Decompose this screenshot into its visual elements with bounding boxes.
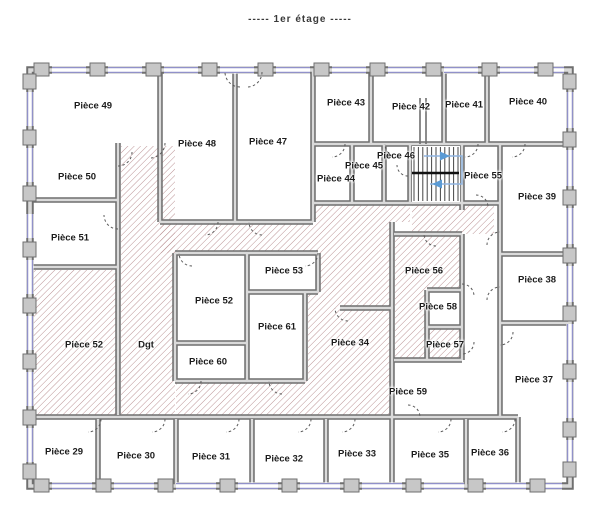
floor-plan-page: ----- 1er étage ----- Pièce 49Pièce 48Pi… <box>0 0 600 528</box>
staircase <box>412 146 462 202</box>
floor-plan: Pièce 49Pièce 48Pièce 47Pièce 43Pièce 42… <box>0 0 600 528</box>
floor-plan-drawing <box>0 0 600 528</box>
